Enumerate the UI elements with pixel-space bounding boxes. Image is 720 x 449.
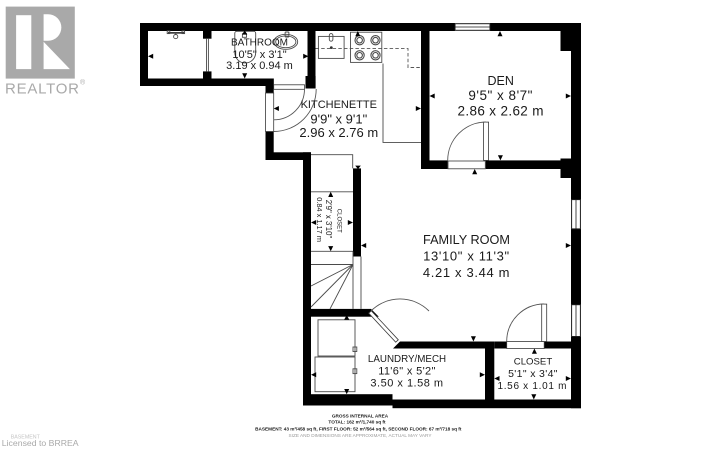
svg-text:LAUNDRY/MECH: LAUNDRY/MECH: [368, 354, 446, 365]
svg-text:SIZE AND DIMENSIONS ARE APPROX: SIZE AND DIMENSIONS ARE APPROXIMATE, ACT…: [289, 433, 433, 438]
svg-text:2.96 x 2.76 m: 2.96 x 2.76 m: [299, 125, 378, 140]
svg-text:CLOSET: CLOSET: [336, 209, 342, 233]
svg-text:GROSS INTERNAL AREA: GROSS INTERNAL AREA: [332, 414, 389, 419]
svg-text:13'10" x 11'3": 13'10" x 11'3": [423, 249, 510, 264]
svg-text:®: ®: [80, 79, 86, 87]
svg-text:5'1" x 3'4": 5'1" x 3'4": [508, 368, 558, 380]
svg-text:11'6" x 5'2": 11'6" x 5'2": [378, 366, 436, 378]
svg-text:DEN: DEN: [487, 74, 513, 88]
svg-text:1.56 x 1.01 m: 1.56 x 1.01 m: [497, 381, 567, 392]
svg-text:CLOSET: CLOSET: [514, 357, 553, 368]
svg-text:Licensed to BRREA: Licensed to BRREA: [2, 438, 79, 448]
svg-text:KITCHENETTE: KITCHENETTE: [301, 99, 377, 111]
svg-text:3.50 x 1.58 m: 3.50 x 1.58 m: [370, 378, 443, 390]
svg-text:TOTAL: 162 m²/1,740 sq ft: TOTAL: 162 m²/1,740 sq ft: [328, 420, 386, 425]
svg-text:BATHROOM: BATHROOM: [231, 37, 288, 48]
svg-text:9'5" x 8'7": 9'5" x 8'7": [468, 88, 533, 103]
svg-text:REALTOR: REALTOR: [5, 80, 79, 97]
svg-text:2.86 x 2.62 m: 2.86 x 2.62 m: [458, 104, 544, 119]
svg-text:3.19 x 0.94 m: 3.19 x 0.94 m: [226, 60, 293, 72]
svg-text:4.21 x 3.44 m: 4.21 x 3.44 m: [423, 265, 510, 280]
svg-text:2'9" x 3'10": 2'9" x 3'10": [324, 200, 333, 239]
svg-text:FAMILY ROOM: FAMILY ROOM: [423, 233, 510, 247]
svg-text:0.84 x 1.17 m: 0.84 x 1.17 m: [315, 197, 324, 242]
svg-text:BASEMENT: 43 m²/458 sq ft, FIR: BASEMENT: 43 m²/458 sq ft, FIRST FLOOR: …: [255, 427, 462, 432]
